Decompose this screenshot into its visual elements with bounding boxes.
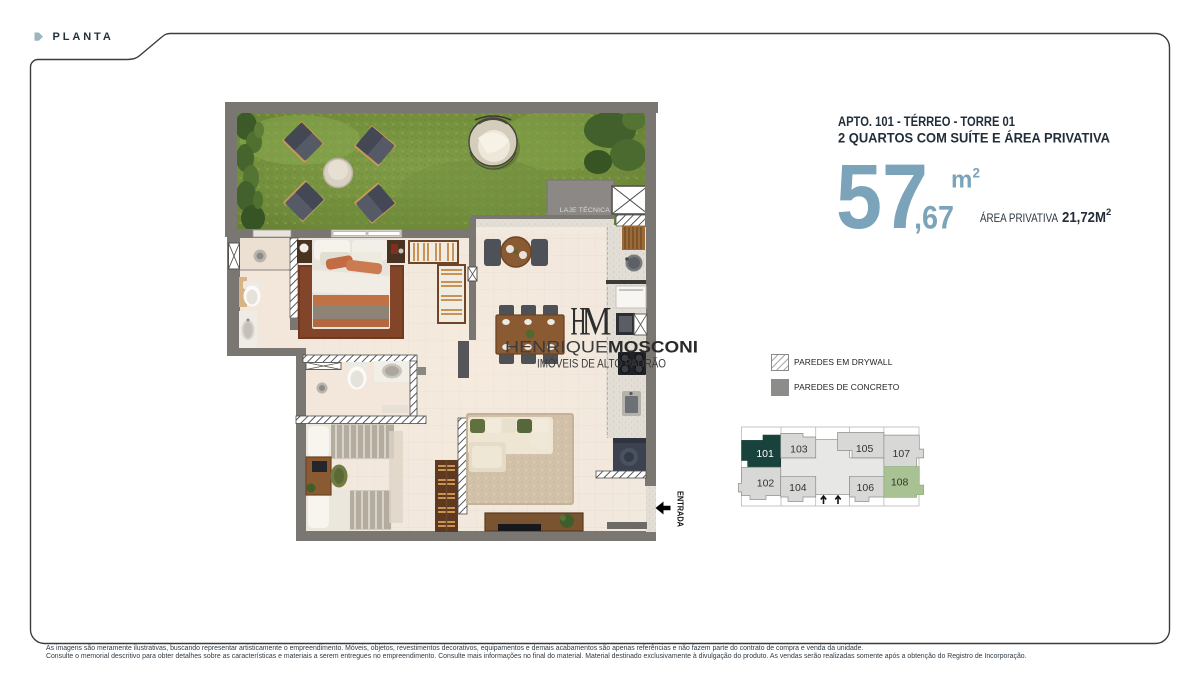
svg-text:IMÓVEIS DE ALTO PADRÃO: IMÓVEIS DE ALTO PADRÃO [537,356,666,371]
svg-text:m: m [951,167,972,194]
svg-text:HENRIQUEMOSCONI: HENRIQUEMOSCONI [505,338,698,356]
svg-text:101: 101 [756,448,774,460]
svg-text:ÁREA PRIVATIVA: ÁREA PRIVATIVA [980,210,1059,225]
svg-text:105: 105 [856,443,874,455]
svg-text:104: 104 [789,482,807,494]
svg-text:ENTRADA: ENTRADA [676,491,685,527]
svg-text:APTO. 101 - TÉRREO - TORRE 01: APTO. 101 - TÉRREO - TORRE 01 [838,114,1015,129]
svg-text:M: M [582,299,612,344]
svg-text:2: 2 [973,166,981,181]
svg-text:102: 102 [757,477,775,489]
svg-text:108: 108 [891,476,909,488]
svg-text:LAJE TÉCNICA: LAJE TÉCNICA [560,205,611,214]
svg-text:107: 107 [893,448,911,460]
svg-text:106: 106 [857,482,875,494]
svg-text:,67: ,67 [914,200,954,236]
svg-text:21,72M: 21,72M [1062,209,1106,226]
svg-text:103: 103 [790,444,808,456]
svg-text:2: 2 [1106,207,1111,218]
svg-text:2 QUARTOS COM SUÍTE E ÁREA PRI: 2 QUARTOS COM SUÍTE E ÁREA PRIVATIVA [838,131,1110,146]
